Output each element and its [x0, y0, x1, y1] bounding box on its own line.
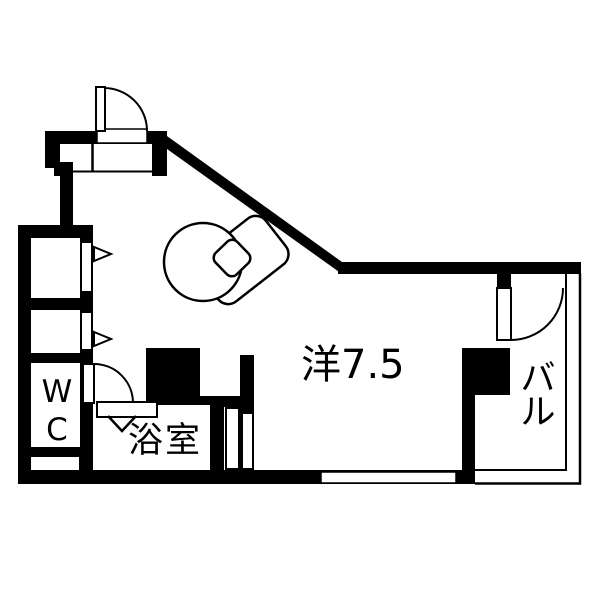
balcony-door-arc: [511, 288, 563, 340]
bathroom-right-wall: [210, 407, 224, 470]
main-room-label: 洋7.5: [301, 345, 405, 385]
entrance-door-leaf: [96, 87, 105, 131]
top-right-wall: [338, 262, 581, 274]
main-window: [321, 472, 456, 483]
sliding-door: [226, 408, 253, 469]
balcony-door: [497, 272, 563, 340]
sliding-door-panel-b: [242, 413, 253, 469]
entrance-door-arc: [104, 88, 147, 131]
balcony-label: バル: [518, 362, 558, 430]
genkan-lines: [73, 142, 152, 172]
sliding-door-panel-a: [226, 408, 239, 469]
closet-upper: [31, 238, 80, 298]
bathroom-sill: [97, 402, 157, 417]
toilet-window: [31, 457, 79, 470]
balcony-column-wall: [462, 395, 475, 484]
bathroom-block-wall: [146, 348, 200, 405]
closet-upper-door: [81, 242, 92, 292]
balcony-door-leaf: [497, 288, 511, 340]
closet-lower: [31, 310, 80, 353]
balcony-door-hinge: [497, 272, 511, 288]
toilet-door: [83, 364, 133, 403]
bathroom-label: 浴室: [128, 424, 202, 459]
toilet-door-arc: [94, 364, 133, 403]
entrance-column-wall: [60, 168, 73, 226]
closet-upper-arrow: [94, 247, 111, 261]
toilet-label: WC: [38, 373, 76, 449]
closet-lower-arrow: [94, 332, 111, 346]
floor-plan-drawing: [0, 0, 600, 600]
balcony-block-wall: [462, 348, 510, 395]
toilet-door-leaf: [83, 364, 94, 403]
floor-plan: 洋7.5 バル WC 浴室: [0, 0, 600, 600]
genkan-right-wall: [152, 143, 167, 176]
closet-lower-door: [81, 312, 92, 350]
entrance-door: [96, 87, 147, 143]
